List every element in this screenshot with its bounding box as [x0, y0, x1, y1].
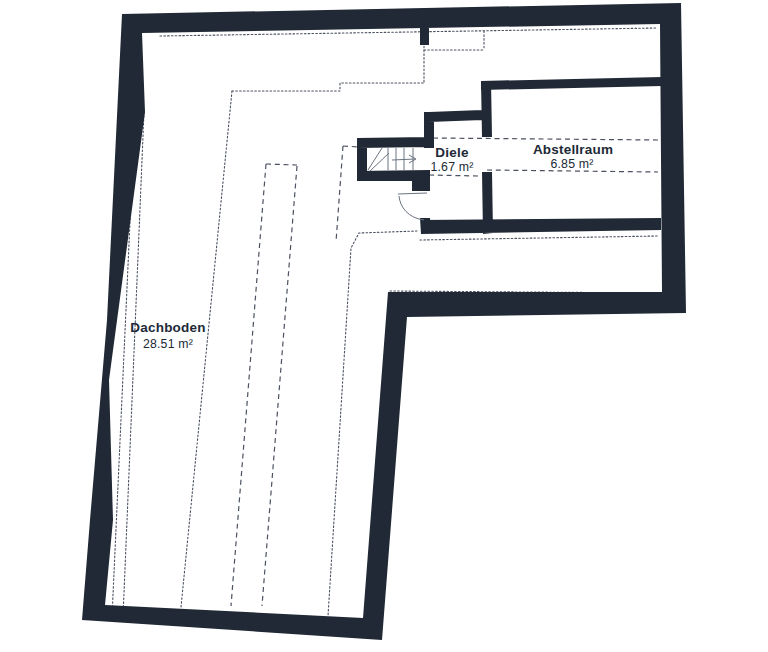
floorplan-page: Dachboden 28.51 m² Diele 1.67 m² Abstell… [0, 0, 768, 652]
guide-line [231, 164, 266, 606]
staircase-symbol [368, 148, 416, 171]
guide-line [336, 146, 343, 242]
guide-line [262, 166, 297, 606]
room-label-dachboden: Dachboden 28.51 m² [130, 320, 205, 351]
room-name: Abstellraum [533, 142, 613, 157]
arrow-shaft [392, 159, 415, 160]
guide-line [433, 138, 658, 140]
guide-line [429, 175, 478, 176]
room-area: 28.51 m² [143, 337, 193, 351]
roof-height-dashed-lines [231, 138, 658, 606]
guide-line [420, 236, 658, 240]
guide-line [266, 164, 297, 165]
door-leaf [398, 193, 427, 194]
floorplan-drawing: Dachboden 28.51 m² Diele 1.67 m² Abstell… [0, 0, 768, 652]
room-name: Dachboden [130, 320, 205, 335]
room-label-abstellraum: Abstellraum 6.85 m² [533, 142, 613, 171]
room-area: 6.85 m² [550, 157, 593, 171]
interior-walls [357, 28, 662, 234]
room-area: 1.67 m² [430, 160, 473, 174]
door-swing-symbol [398, 193, 427, 220]
room-name: Diele [435, 145, 469, 160]
guide-line [232, 83, 424, 91]
room-label-diele: Diele 1.67 m² [430, 145, 473, 174]
door-arc [399, 196, 424, 220]
